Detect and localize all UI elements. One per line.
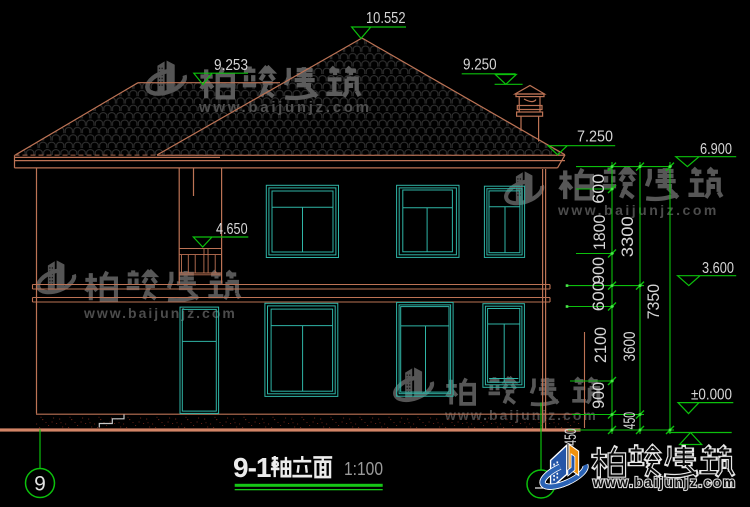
svg-text:7350: 7350 (644, 284, 663, 320)
svg-text:±0.000: ±0.000 (691, 386, 732, 403)
svg-text:600: 600 (589, 174, 608, 204)
svg-text:3300: 3300 (618, 216, 637, 257)
svg-text:450: 450 (561, 428, 580, 446)
svg-text:4.650: 4.650 (216, 221, 248, 238)
svg-text:10.552: 10.552 (366, 10, 406, 27)
svg-text:3600: 3600 (620, 332, 639, 362)
svg-text:1:100: 1:100 (344, 459, 383, 479)
svg-text:6.900: 6.900 (700, 141, 732, 158)
svg-text:900: 900 (589, 382, 608, 409)
svg-text:600: 600 (589, 281, 608, 311)
svg-text:1800: 1800 (590, 215, 609, 251)
svg-text:7.250: 7.250 (577, 129, 613, 146)
svg-text:900: 900 (589, 257, 608, 284)
svg-text:9.250: 9.250 (463, 57, 497, 74)
svg-text:www.baijunjz.com: www.baijunjz.com (592, 475, 737, 490)
svg-text:9: 9 (34, 473, 46, 496)
svg-text:9-1: 9-1 (233, 452, 271, 483)
svg-text:9.253: 9.253 (214, 57, 248, 74)
svg-text:450: 450 (620, 412, 639, 430)
svg-text:www.baijunjz.com: www.baijunjz.com (198, 99, 372, 116)
svg-text:3.600: 3.600 (702, 260, 734, 277)
svg-text:2100: 2100 (591, 327, 610, 363)
svg-text:www.baijunjz.com: www.baijunjz.com (557, 202, 719, 218)
